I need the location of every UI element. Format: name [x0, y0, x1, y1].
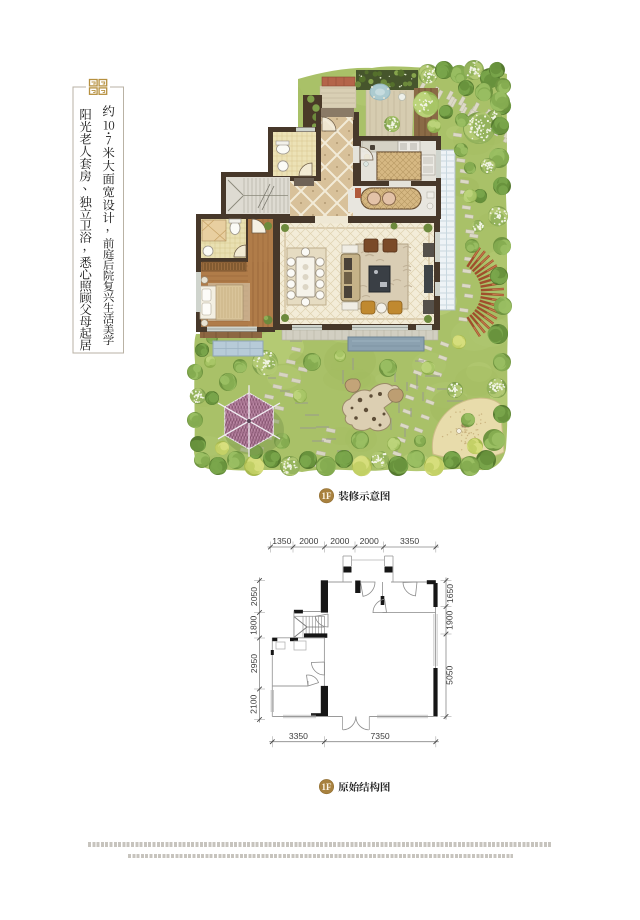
svg-text:1350: 1350: [272, 536, 291, 546]
svg-text:2950: 2950: [249, 654, 259, 673]
svg-text:1650: 1650: [445, 584, 455, 603]
svg-text:3350: 3350: [289, 731, 308, 741]
svg-text:2000: 2000: [330, 536, 349, 546]
svg-text:1F: 1F: [322, 491, 333, 501]
svg-text:5050: 5050: [445, 665, 455, 684]
svg-text:2050: 2050: [249, 587, 259, 606]
svg-text:7350: 7350: [371, 731, 390, 741]
svg-text:2000: 2000: [299, 536, 318, 546]
svg-text:1F: 1F: [322, 782, 333, 792]
svg-text:1800: 1800: [249, 615, 259, 634]
svg-text:3350: 3350: [400, 536, 419, 546]
svg-text:1900: 1900: [445, 610, 455, 629]
svg-text:2000: 2000: [360, 536, 379, 546]
svg-text:2100: 2100: [249, 694, 259, 713]
